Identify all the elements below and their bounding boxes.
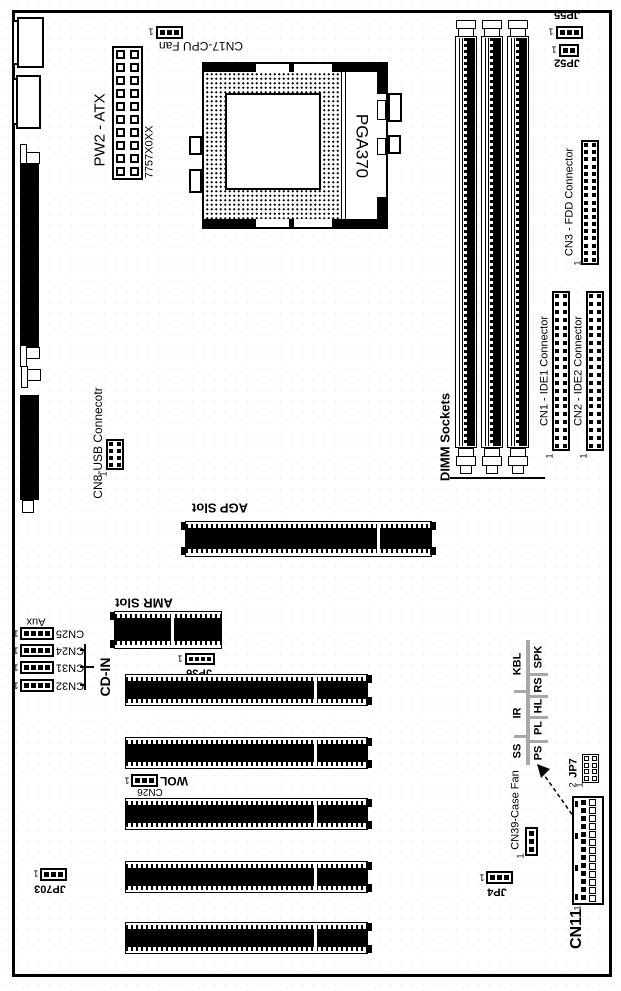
jp7-label: JP7	[569, 758, 580, 778]
atx-label: PW2 - ATX	[93, 93, 108, 166]
cn25-label: CN25	[56, 628, 84, 639]
cdin-bracket	[80, 684, 85, 686]
pci-bar	[126, 805, 367, 823]
pci-end-tick	[366, 697, 372, 705]
cn11-tick	[575, 865, 578, 871]
cpu-socket-tab	[189, 136, 202, 155]
cpu-socket-tab	[189, 169, 202, 193]
dimm-slot-bar	[467, 38, 475, 446]
jp4-jumper	[486, 871, 513, 884]
jp36-jumper	[185, 653, 215, 665]
cn11-pins-b	[589, 799, 596, 902]
cpu-fan-pin1: 1	[148, 27, 153, 36]
pci-end-tick	[366, 923, 372, 931]
pci-end-tick	[366, 738, 372, 746]
cn25-pin1: 1	[13, 629, 18, 638]
pci-bar	[126, 929, 367, 947]
pci-teeth	[126, 699, 367, 703]
io-port-bracket	[27, 369, 41, 381]
agp-end-tick	[430, 547, 436, 555]
panel-cell-rs: RS	[534, 677, 545, 692]
panel-table-divider	[526, 640, 530, 765]
jp703-jumper	[40, 868, 67, 881]
aux-label: Aux	[27, 616, 46, 627]
fdd-label: CN3 - FDD Connector	[565, 148, 576, 256]
cpu-socket-notch	[256, 219, 289, 227]
cpu-socket-line	[345, 64, 346, 219]
panel-table-tick	[530, 673, 548, 676]
cpu-socket-label: PGA370	[354, 114, 371, 178]
dimm-slot-bar	[493, 38, 501, 446]
cdin-bracket	[80, 649, 85, 651]
cn32-pin1: 1	[13, 681, 18, 690]
cn31-connector	[20, 661, 54, 674]
cn11-label: CN11	[569, 909, 585, 949]
cpu-socket-notch	[256, 64, 289, 72]
agp-bar	[186, 528, 431, 549]
pci-teeth	[126, 886, 367, 890]
cpu-fan-label: CN17-CPU Fan	[159, 40, 243, 52]
cdin-bracket	[80, 666, 85, 668]
cn11-pins-a	[581, 800, 586, 900]
pci-end-tick	[366, 799, 372, 807]
case-fan-pin1: 1	[517, 853, 526, 858]
dimm-slot-line	[485, 38, 486, 446]
panel-cell-pl: PL	[534, 721, 545, 735]
cpu-socket-lever	[388, 93, 402, 122]
pci-end-tick	[366, 675, 372, 683]
jp7-pin1: 1	[576, 782, 585, 787]
pci-key-notch	[314, 924, 317, 952]
cdin-label: CD-IN	[98, 658, 112, 697]
io-port-connector	[16, 75, 41, 129]
cn11-tick	[575, 894, 578, 900]
panel-cell-hl: HL	[534, 699, 545, 714]
io-port-parallel	[20, 163, 39, 347]
dimm-latch	[486, 465, 498, 474]
cpu-socket-cavity	[225, 93, 321, 190]
pci-end-tick	[366, 821, 372, 829]
case-fan-label: CN39-Case Fan	[511, 770, 522, 849]
pci-teeth	[126, 823, 367, 827]
io-port-serial	[20, 395, 39, 500]
cdin-bracket	[86, 666, 94, 668]
amr-end-tick	[110, 612, 115, 620]
amr-bar	[115, 618, 221, 641]
agp-end-tick	[181, 547, 186, 555]
atx-power-connector	[112, 46, 143, 180]
panel-table-tick	[514, 735, 530, 738]
case-fan-header	[525, 827, 538, 856]
jp52-pin1: 1	[551, 45, 556, 54]
ide2-header	[586, 291, 604, 451]
cpu-fan-header	[156, 26, 183, 39]
jp55-jumper	[556, 26, 583, 39]
cpu-socket-lever-mount	[377, 138, 386, 155]
dimm-latch	[460, 465, 472, 474]
agp-key-notch	[377, 523, 380, 554]
pci-bar	[126, 681, 367, 699]
cn11-header	[572, 796, 604, 905]
agp-teeth	[186, 549, 431, 553]
wol-label: WOL	[160, 775, 188, 787]
ide1-pin1: 1	[546, 453, 555, 458]
panel-cell-kbl: KBL	[513, 653, 524, 676]
agp-label: AGP Slot	[192, 502, 248, 515]
cn11-tick	[575, 833, 578, 839]
ide2-label: CN2 - IDE2 Connector	[574, 316, 585, 426]
cpu-socket-corner	[377, 64, 386, 94]
panel-cell-ir: IR	[513, 708, 524, 719]
dimm-slot-line	[514, 38, 515, 446]
amr-label: AMR Slot	[115, 597, 173, 610]
io-port-bracket	[22, 500, 34, 513]
pci-end-tick	[366, 945, 372, 953]
pci-key-notch	[314, 739, 317, 767]
jp703-pin1: 1	[33, 869, 38, 878]
fdd-header	[581, 140, 599, 265]
dimm-slot-line	[488, 38, 489, 446]
panel-cell-spk: SPK	[534, 646, 545, 669]
cpu-socket-corner	[377, 197, 386, 227]
panel-table-tick	[530, 716, 548, 719]
cn31-pin1: 1	[13, 663, 18, 672]
amr-teeth	[115, 641, 221, 645]
jp36-pin1: 1	[177, 654, 182, 663]
dimm-latch	[512, 465, 524, 474]
io-port-connector	[17, 17, 44, 68]
pci-end-tick	[366, 862, 372, 870]
panel-cell-ss: SS	[513, 744, 524, 759]
pci-key-notch	[314, 800, 317, 828]
agp-end-tick	[430, 522, 436, 530]
dimm-slot-bar	[519, 38, 527, 446]
dimm-slot-line	[462, 38, 463, 446]
motherboard-diagram: PW2 - ATX 7757X0XX 1 CN17-CPU Fan PGA370…	[0, 0, 621, 991]
dimm-slot-line	[459, 38, 460, 446]
atx-part-number: 7757X0XX	[145, 126, 156, 179]
cn24-pin1: 1	[13, 646, 18, 655]
pci-key-notch	[314, 676, 317, 704]
usb-header	[106, 439, 124, 470]
amr-key-notch	[171, 613, 174, 647]
jp7-header	[582, 754, 599, 783]
pci-key-notch	[314, 863, 317, 891]
jp703-label: JP703	[34, 883, 66, 894]
usb-label: CN8-USB Connecotr	[92, 387, 104, 498]
jp55-pin1: 1	[548, 27, 553, 36]
panel-table-tick	[514, 690, 530, 693]
agp-end-tick	[181, 522, 186, 530]
cn11-tick	[575, 801, 578, 807]
pci-end-tick	[366, 884, 372, 892]
cn26-label: CN26	[137, 786, 163, 796]
cpu-socket-lever-mount	[377, 100, 386, 120]
jp52-jumper	[559, 44, 579, 57]
amr-end-tick	[110, 640, 115, 648]
ide2-pin1: 1	[580, 453, 589, 458]
ide1-header	[552, 291, 570, 451]
cpu-socket-lever	[388, 135, 401, 154]
cpu-socket-notch	[294, 64, 332, 72]
cn24-connector	[20, 644, 54, 657]
dimm-base-line	[450, 477, 545, 479]
panel-table-tick	[530, 740, 548, 743]
wol-pin1: 1	[124, 776, 129, 785]
cn25-connector	[20, 627, 54, 640]
pci-bar	[126, 868, 367, 886]
io-port-bracket	[26, 347, 40, 359]
jp52-label: JP52	[554, 57, 580, 68]
jp55-label: JP55	[554, 9, 580, 20]
jp4-label: JP4	[487, 886, 507, 897]
fdd-pin1: 1	[574, 260, 583, 265]
dimm-label: DIMM Sockets	[439, 393, 452, 481]
cn32-connector	[20, 679, 54, 692]
pci-teeth	[126, 762, 367, 766]
pci-end-tick	[366, 760, 372, 768]
dimm-slot-line	[511, 38, 512, 446]
cpu-socket-notch	[294, 219, 332, 227]
pci-teeth	[126, 947, 367, 951]
jp4-pin1: 1	[479, 873, 484, 882]
pci-bar	[126, 744, 367, 762]
ide1-label: CN1 - IDE1 Connector	[540, 316, 551, 426]
cpu-socket-line	[341, 64, 342, 219]
